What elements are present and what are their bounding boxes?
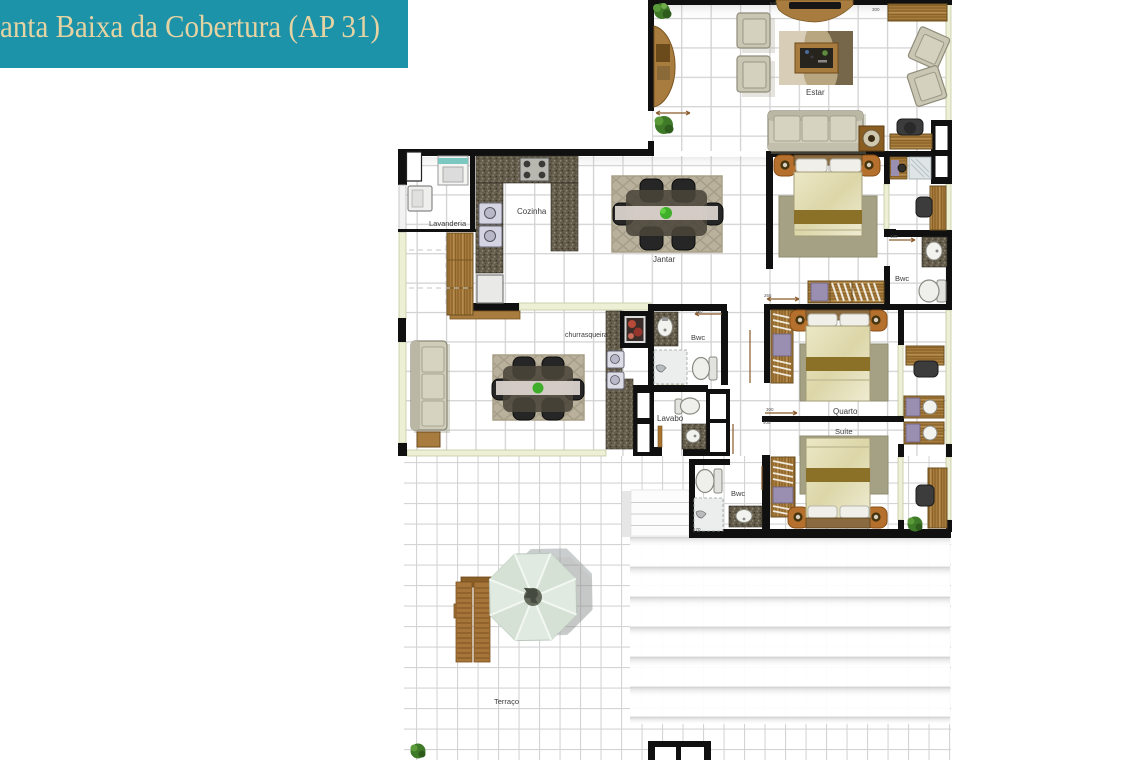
svg-text:130: 130 [890, 234, 898, 239]
svg-text:Estar: Estar [806, 88, 825, 97]
svg-text:Quarto: Quarto [833, 407, 858, 416]
svg-text:Bwc: Bwc [691, 333, 705, 342]
svg-text:Lavabo: Lavabo [657, 414, 684, 423]
svg-text:405: 405 [763, 420, 771, 425]
svg-text:anta Baixa da Cobertura (AP 31: anta Baixa da Cobertura (AP 31) [0, 8, 380, 44]
svg-text:545: 545 [770, 1, 778, 6]
svg-text:Cozinha: Cozinha [517, 207, 547, 216]
svg-text:Bwc: Bwc [895, 274, 909, 283]
svg-text:265: 265 [764, 293, 772, 298]
svg-text:300: 300 [872, 7, 880, 12]
svg-text:170: 170 [693, 527, 701, 532]
svg-text:Jantar: Jantar [653, 255, 676, 264]
svg-text:160: 160 [695, 309, 703, 314]
svg-text:Bwc: Bwc [731, 489, 745, 498]
svg-text:Terraço: Terraço [494, 697, 519, 706]
svg-text:300: 300 [766, 407, 774, 412]
svg-text:churrasqueira: churrasqueira [565, 332, 608, 339]
svg-text:Suíte: Suíte [835, 427, 853, 436]
svg-text:Lavanderia: Lavanderia [429, 219, 467, 228]
